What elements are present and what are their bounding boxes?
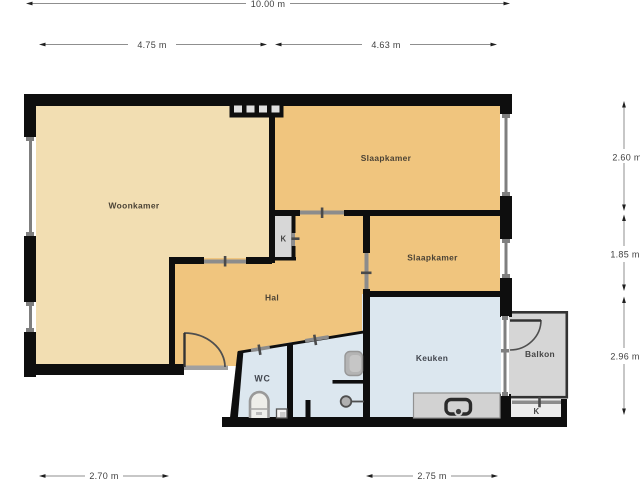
svg-text:Hal: Hal	[265, 293, 279, 303]
svg-text:4.75 m: 4.75 m	[137, 40, 166, 50]
svg-text:Keuken: Keuken	[416, 353, 448, 363]
svg-text:2.60 m: 2.60 m	[612, 153, 640, 163]
svg-text:K: K	[534, 407, 540, 416]
svg-text:WC: WC	[254, 374, 270, 384]
svg-text:2.70 m: 2.70 m	[89, 471, 118, 480]
svg-text:Woonkamer: Woonkamer	[109, 201, 160, 211]
svg-text:Slaapkamer: Slaapkamer	[361, 153, 412, 163]
svg-text:2.75 m: 2.75 m	[417, 471, 446, 480]
svg-text:1.85 m: 1.85 m	[610, 250, 639, 260]
svg-text:4.63 m: 4.63 m	[371, 40, 400, 50]
svg-text:K: K	[281, 235, 287, 244]
svg-text:Balkon: Balkon	[525, 349, 555, 359]
svg-text:Slaapkamer: Slaapkamer	[407, 253, 458, 263]
svg-text:10.00 m: 10.00 m	[251, 0, 286, 9]
svg-text:2.96 m: 2.96 m	[610, 352, 639, 362]
